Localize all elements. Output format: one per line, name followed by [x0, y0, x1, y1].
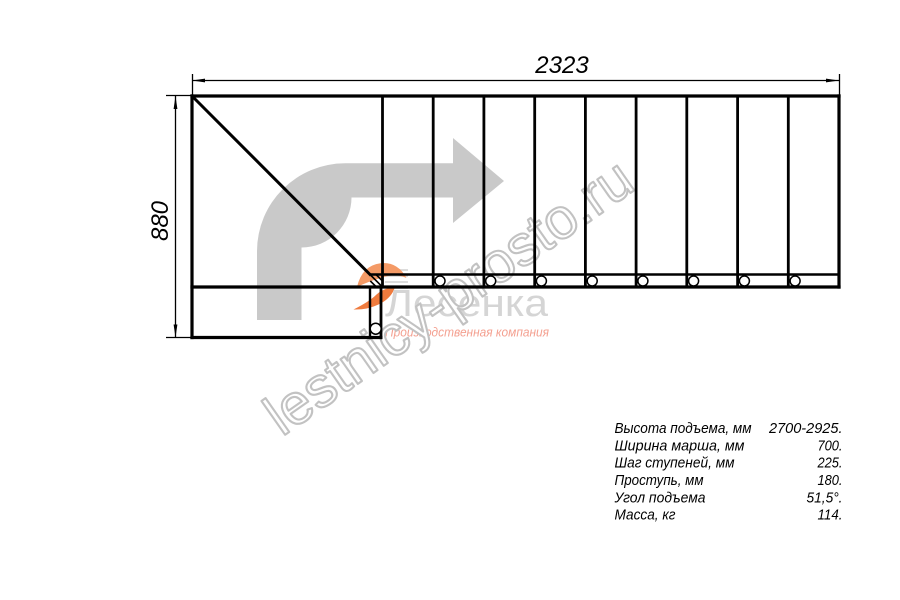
svg-text:Проступь, мм: Проступь, мм — [615, 472, 705, 489]
svg-text:51,5°.: 51,5°. — [807, 489, 843, 506]
svg-text:180.: 180. — [818, 472, 843, 489]
svg-text:Высота подъема, мм: Высота подъема, мм — [615, 420, 753, 437]
svg-text:Угол подъема: Угол подъема — [614, 489, 706, 506]
svg-text:225.: 225. — [817, 455, 843, 472]
svg-text:Шаг ступеней, мм: Шаг ступеней, мм — [615, 455, 736, 472]
svg-text:114.: 114. — [818, 507, 843, 524]
svg-text:880: 880 — [147, 200, 174, 241]
svg-text:Масса, кг: Масса, кг — [615, 507, 676, 524]
svg-text:2700-2925.: 2700-2925. — [768, 420, 842, 437]
svg-text:2323: 2323 — [534, 52, 589, 79]
svg-text:Ширина марша, мм: Ширина марша, мм — [615, 437, 746, 454]
svg-text:700.: 700. — [818, 437, 843, 454]
